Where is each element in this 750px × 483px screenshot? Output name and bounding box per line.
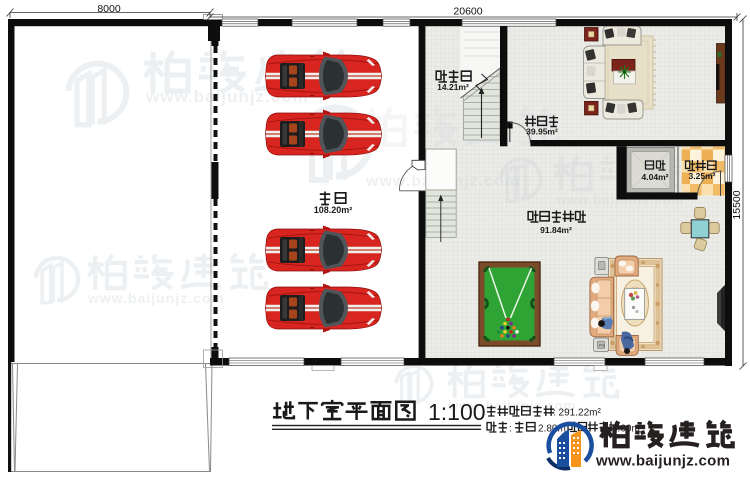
- svg-text:91.84m²: 91.84m²: [540, 225, 572, 235]
- svg-text:4.04m²: 4.04m²: [642, 172, 669, 182]
- svg-text:15500: 15500: [731, 190, 743, 219]
- svg-text:1:100: 1:100: [428, 399, 486, 425]
- svg-text:3.25m²: 3.25m²: [689, 171, 716, 181]
- svg-text:PS: PS: [599, 343, 605, 348]
- svg-text:www.baijunjz.com: www.baijunjz.com: [595, 453, 730, 470]
- svg-text:14.21m²: 14.21m²: [437, 82, 469, 92]
- svg-text:108.20m²: 108.20m²: [314, 205, 353, 215]
- svg-text:8000: 8000: [97, 3, 121, 15]
- svg-text:: 291.22m²: : 291.22m²: [553, 408, 601, 419]
- svg-text:20600: 20600: [453, 6, 482, 18]
- svg-text:39.95m²: 39.95m²: [526, 127, 558, 137]
- svg-text::: :: [509, 424, 512, 435]
